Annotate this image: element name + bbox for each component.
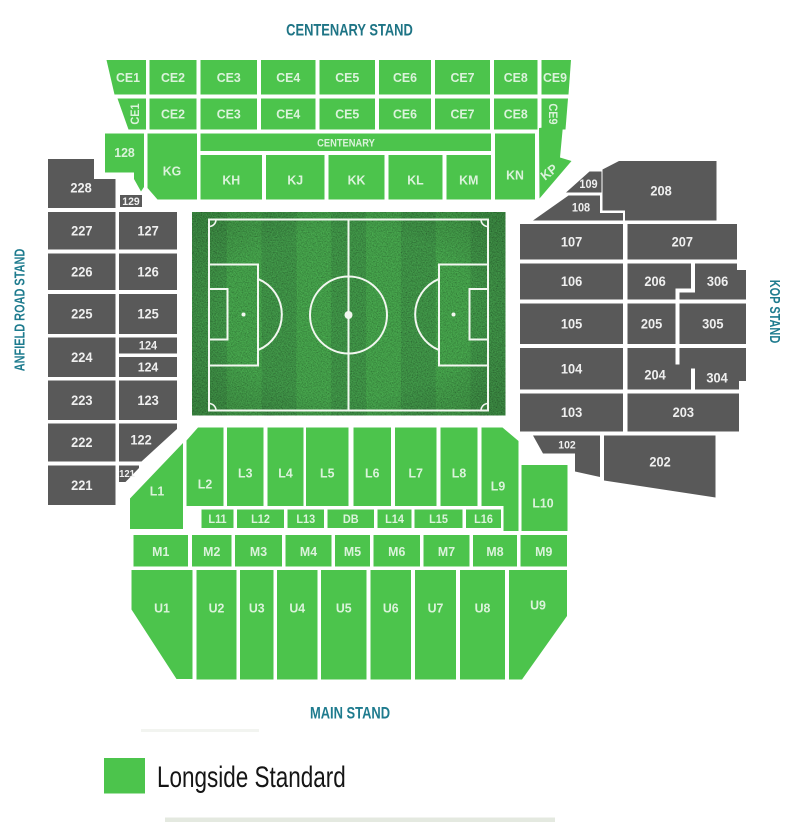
svg-text:L3: L3 xyxy=(238,466,252,480)
svg-text:CE9: CE9 xyxy=(543,70,567,84)
svg-text:KK: KK xyxy=(348,173,367,187)
svg-text:CE1: CE1 xyxy=(116,70,140,84)
svg-text:CE5: CE5 xyxy=(335,70,359,84)
svg-text:CE3: CE3 xyxy=(217,107,241,121)
svg-text:L14: L14 xyxy=(385,514,405,526)
svg-text:106: 106 xyxy=(561,274,582,289)
svg-text:U1: U1 xyxy=(154,601,170,615)
svg-text:102: 102 xyxy=(558,439,575,451)
svg-text:CE6: CE6 xyxy=(393,70,417,84)
svg-text:206: 206 xyxy=(644,274,665,289)
svg-text:U3: U3 xyxy=(249,601,265,615)
svg-text:L9: L9 xyxy=(491,479,505,493)
svg-text:M9: M9 xyxy=(535,545,552,559)
svg-text:KOP STAND: KOP STAND xyxy=(766,280,783,343)
svg-text:124: 124 xyxy=(139,340,158,352)
svg-text:CE5: CE5 xyxy=(335,107,359,121)
svg-text:122: 122 xyxy=(130,432,151,447)
svg-text:L13: L13 xyxy=(296,514,315,526)
svg-text:228: 228 xyxy=(70,180,91,195)
svg-text:CE6: CE6 xyxy=(393,107,417,121)
svg-text:104: 104 xyxy=(561,361,583,376)
svg-text:CE2: CE2 xyxy=(161,70,185,84)
svg-text:L5: L5 xyxy=(320,466,334,480)
svg-text:DB: DB xyxy=(343,514,359,526)
svg-text:CE8: CE8 xyxy=(504,107,528,121)
svg-text:Longside Standard: Longside Standard xyxy=(157,760,346,794)
svg-text:205: 205 xyxy=(641,316,662,331)
svg-text:U9: U9 xyxy=(530,598,546,612)
svg-text:KM: KM xyxy=(459,173,478,187)
svg-text:124: 124 xyxy=(138,360,159,374)
svg-text:222: 222 xyxy=(71,435,92,450)
svg-text:225: 225 xyxy=(71,306,92,321)
svg-text:KG: KG xyxy=(163,164,182,178)
svg-text:107: 107 xyxy=(561,234,582,249)
svg-text:103: 103 xyxy=(561,405,582,420)
svg-text:203: 203 xyxy=(673,405,694,420)
svg-text:L7: L7 xyxy=(409,466,423,480)
svg-text:126: 126 xyxy=(137,264,158,279)
svg-text:304: 304 xyxy=(706,370,728,385)
svg-text:KJ: KJ xyxy=(287,173,303,187)
svg-text:U7: U7 xyxy=(428,601,444,615)
svg-text:306: 306 xyxy=(707,274,728,289)
svg-text:CENTENARY: CENTENARY xyxy=(317,138,375,150)
svg-text:L12: L12 xyxy=(251,514,270,526)
svg-text:CE9: CE9 xyxy=(546,103,558,124)
svg-text:CE7: CE7 xyxy=(451,70,475,84)
svg-text:U8: U8 xyxy=(475,601,491,615)
svg-text:L16: L16 xyxy=(474,514,493,526)
svg-text:KL: KL xyxy=(407,173,424,187)
svg-text:M6: M6 xyxy=(388,545,405,559)
svg-text:KH: KH xyxy=(222,173,240,187)
svg-text:207: 207 xyxy=(672,234,693,249)
svg-text:L15: L15 xyxy=(429,514,448,526)
svg-text:L1: L1 xyxy=(150,484,164,498)
svg-text:221: 221 xyxy=(71,478,92,493)
svg-text:CE7: CE7 xyxy=(451,107,475,121)
svg-text:123: 123 xyxy=(137,393,158,408)
svg-text:M7: M7 xyxy=(438,545,455,559)
svg-text:224: 224 xyxy=(71,350,93,365)
svg-text:105: 105 xyxy=(561,316,582,331)
svg-text:L4: L4 xyxy=(278,466,292,480)
svg-text:108: 108 xyxy=(572,202,590,214)
svg-text:KN: KN xyxy=(506,168,524,182)
svg-text:CE1: CE1 xyxy=(130,103,142,124)
svg-text:L10: L10 xyxy=(532,496,553,510)
svg-text:CENTENARY STAND: CENTENARY STAND xyxy=(286,21,413,40)
svg-text:CE8: CE8 xyxy=(504,70,528,84)
svg-text:227: 227 xyxy=(71,223,92,238)
svg-text:U5: U5 xyxy=(336,601,352,615)
svg-text:128: 128 xyxy=(114,146,135,160)
svg-text:204: 204 xyxy=(644,367,666,382)
svg-text:CE4: CE4 xyxy=(276,107,300,121)
svg-text:MAIN STAND: MAIN STAND xyxy=(310,704,390,723)
svg-text:129: 129 xyxy=(122,196,139,208)
svg-text:L8: L8 xyxy=(452,466,466,480)
svg-text:M3: M3 xyxy=(250,545,267,559)
svg-text:208: 208 xyxy=(650,183,671,198)
svg-text:U2: U2 xyxy=(209,601,225,615)
svg-text:ANFIELD ROAD STAND: ANFIELD ROAD STAND xyxy=(11,249,28,372)
svg-text:L6: L6 xyxy=(365,466,379,480)
svg-text:U6: U6 xyxy=(383,601,399,615)
svg-text:L2: L2 xyxy=(198,477,212,491)
svg-text:109: 109 xyxy=(579,179,597,191)
svg-text:125: 125 xyxy=(137,306,158,321)
svg-text:223: 223 xyxy=(71,393,92,408)
svg-text:M2: M2 xyxy=(203,545,220,559)
svg-text:202: 202 xyxy=(649,454,670,469)
svg-text:127: 127 xyxy=(137,223,158,238)
svg-text:M8: M8 xyxy=(486,545,503,559)
svg-text:CE4: CE4 xyxy=(276,70,300,84)
svg-text:CE2: CE2 xyxy=(161,107,185,121)
svg-text:226: 226 xyxy=(71,264,92,279)
svg-text:L11: L11 xyxy=(208,514,226,526)
svg-text:U4: U4 xyxy=(289,601,305,615)
svg-text:CE3: CE3 xyxy=(217,70,241,84)
svg-text:M5: M5 xyxy=(344,545,361,559)
svg-text:M4: M4 xyxy=(300,545,317,559)
svg-text:121: 121 xyxy=(119,469,135,480)
svg-text:M1: M1 xyxy=(152,545,169,559)
svg-text:305: 305 xyxy=(702,316,723,331)
